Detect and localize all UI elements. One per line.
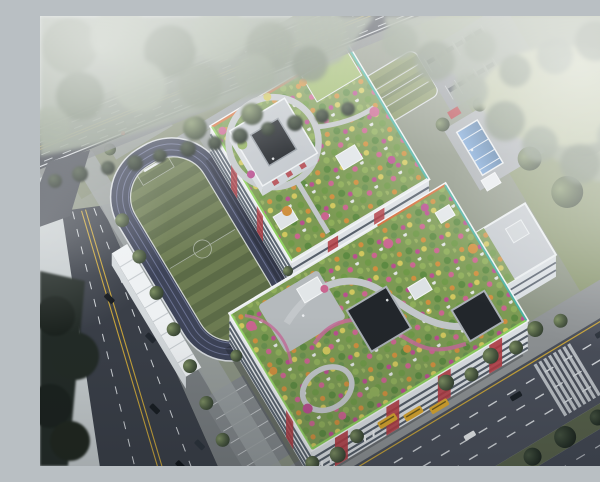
campus-aerial-rendering xyxy=(40,16,600,466)
rendering-canvas xyxy=(40,16,600,466)
bottom-shade xyxy=(40,316,600,466)
